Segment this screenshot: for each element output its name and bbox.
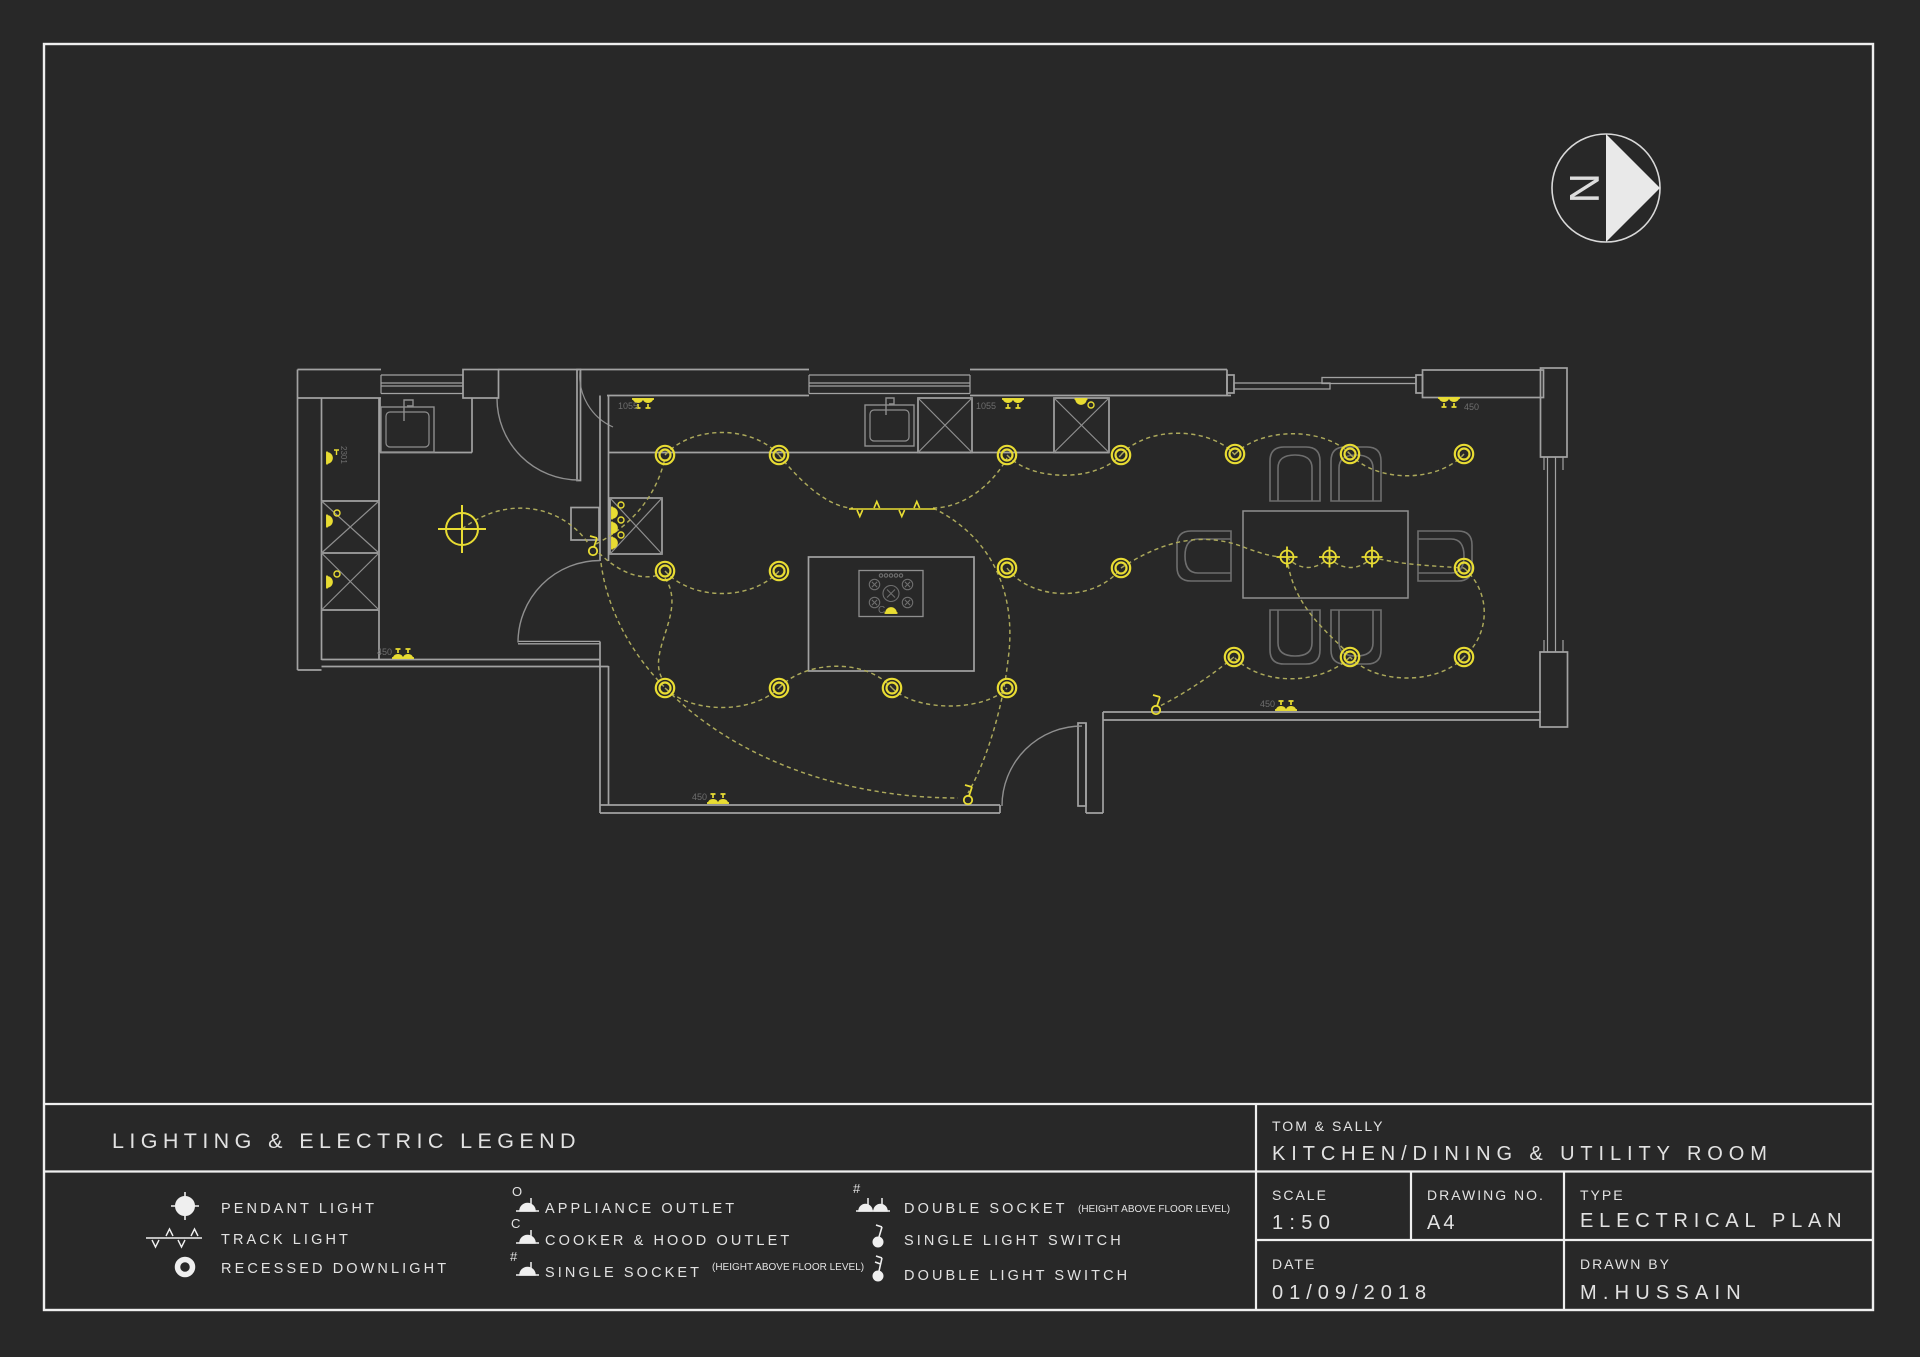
svg-text:450: 450 (1260, 699, 1275, 709)
svg-text:(HEIGHT ABOVE FLOOR LEVEL): (HEIGHT ABOVE FLOOR LEVEL) (712, 1262, 864, 1273)
svg-text:N: N (1561, 173, 1608, 203)
svg-text:A4: A4 (1427, 1212, 1457, 1234)
svg-text:450: 450 (377, 647, 392, 657)
svg-text:SINGLE LIGHT SWITCH: SINGLE LIGHT SWITCH (904, 1233, 1124, 1249)
svg-text:O: O (512, 1184, 522, 1199)
svg-text:M.HUSSAIN: M.HUSSAIN (1580, 1282, 1747, 1304)
svg-text:1055: 1055 (618, 401, 638, 411)
svg-text:APPLIANCE OUTLET: APPLIANCE OUTLET (545, 1201, 737, 1217)
svg-text:C: C (878, 605, 885, 616)
svg-text:450: 450 (1464, 402, 1479, 412)
svg-text:DOUBLE SOCKET: DOUBLE SOCKET (904, 1201, 1068, 1217)
svg-text:DATE: DATE (1272, 1256, 1316, 1272)
svg-text:PENDANT LIGHT: PENDANT LIGHT (221, 1201, 377, 1217)
svg-text:2301: 2301 (339, 446, 348, 464)
svg-text:TOM & SALLY: TOM & SALLY (1272, 1118, 1385, 1134)
svg-text:TYPE: TYPE (1580, 1187, 1625, 1203)
svg-text:C: C (511, 1216, 520, 1231)
svg-text:RECESSED DOWNLIGHT: RECESSED DOWNLIGHT (221, 1261, 449, 1277)
svg-text:(HEIGHT ABOVE FLOOR LEVEL): (HEIGHT ABOVE FLOOR LEVEL) (1078, 1204, 1230, 1215)
svg-text:1:50: 1:50 (1272, 1212, 1336, 1234)
svg-text:ELECTRICAL PLAN: ELECTRICAL PLAN (1580, 1210, 1847, 1232)
svg-text:TRACK LIGHT: TRACK LIGHT (221, 1232, 351, 1248)
svg-text:SINGLE SOCKET: SINGLE SOCKET (545, 1265, 702, 1281)
svg-text:450: 450 (692, 792, 707, 802)
svg-text:#: # (853, 1181, 861, 1196)
svg-text:LIGHTING & ELECTRIC LEGEND: LIGHTING & ELECTRIC LEGEND (112, 1129, 581, 1153)
svg-text:DOUBLE LIGHT SWITCH: DOUBLE LIGHT SWITCH (904, 1268, 1130, 1284)
svg-text:KITCHEN/DINING & UTILITY ROOM: KITCHEN/DINING & UTILITY ROOM (1272, 1143, 1773, 1165)
svg-text:#: # (510, 1249, 518, 1264)
svg-text:SCALE: SCALE (1272, 1187, 1328, 1203)
svg-text:DRAWING NO.: DRAWING NO. (1427, 1187, 1545, 1203)
svg-text:COOKER & HOOD OUTLET: COOKER & HOOD OUTLET (545, 1233, 792, 1249)
svg-text:1055: 1055 (976, 401, 996, 411)
svg-text:DRAWN BY: DRAWN BY (1580, 1256, 1671, 1272)
svg-text:01/09/2018: 01/09/2018 (1272, 1282, 1432, 1304)
